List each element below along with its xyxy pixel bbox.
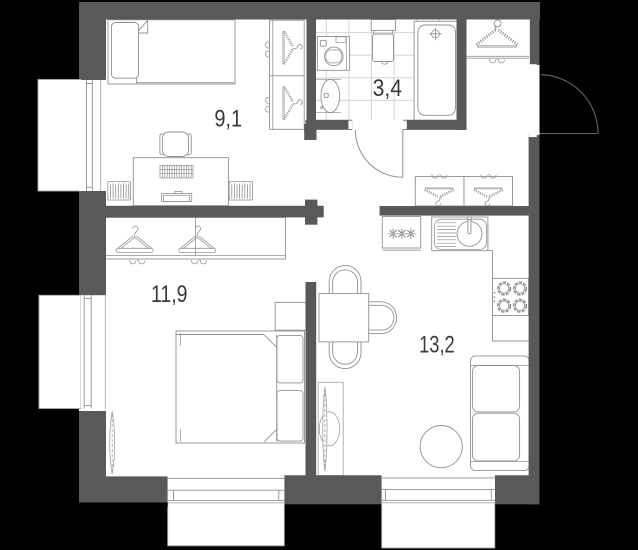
svg-text:11,9: 11,9 [151, 280, 188, 307]
svg-text:3,4: 3,4 [373, 75, 402, 101]
svg-text:13,2: 13,2 [419, 331, 455, 358]
svg-text:9,1: 9,1 [214, 105, 242, 132]
